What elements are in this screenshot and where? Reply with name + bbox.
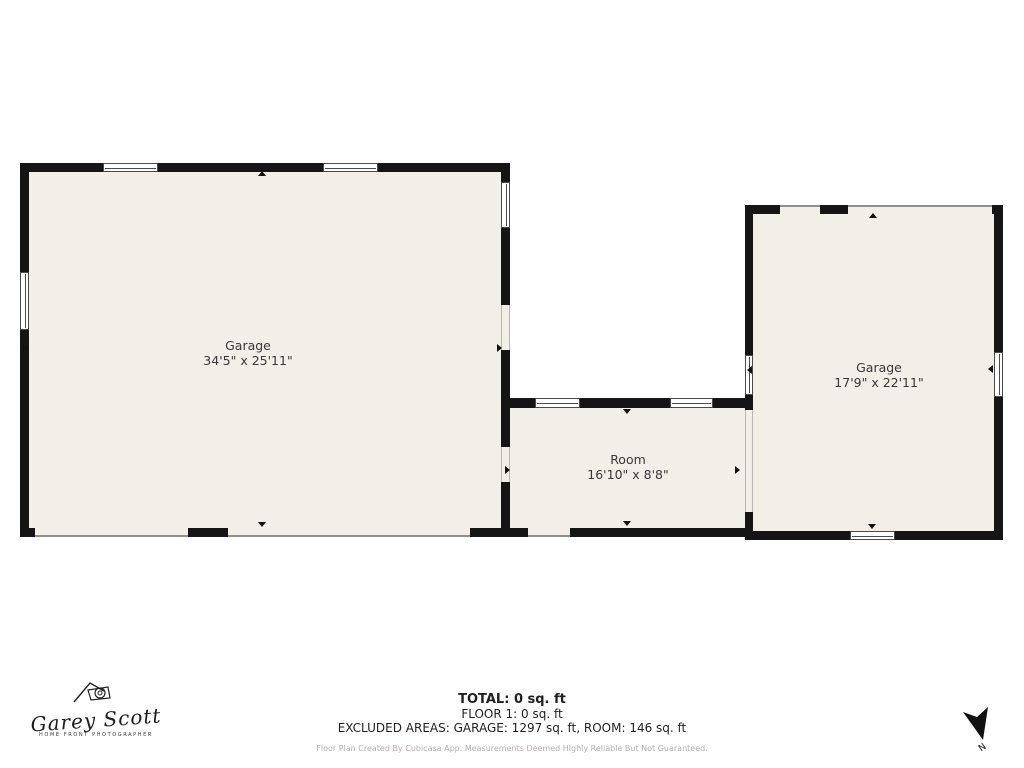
entry-arrow-icon bbox=[735, 466, 740, 474]
wall-segment bbox=[994, 205, 1003, 352]
entry-arrow-icon bbox=[868, 524, 876, 529]
north-arrow-icon: N bbox=[950, 690, 1010, 760]
window bbox=[323, 163, 378, 172]
north-compass: N bbox=[950, 690, 1010, 760]
wall-segment bbox=[570, 528, 753, 537]
wall-segment bbox=[745, 395, 753, 410]
entry-arrow-icon bbox=[505, 466, 510, 474]
door-opening bbox=[501, 305, 510, 350]
entry-arrow-icon bbox=[623, 409, 631, 414]
door-opening bbox=[501, 447, 510, 482]
room-label-room: Room 16'10" x 8'8" bbox=[587, 452, 668, 482]
wide-opening bbox=[745, 410, 753, 512]
window bbox=[670, 398, 713, 408]
room-dimensions: 34'5" x 25'11" bbox=[203, 353, 292, 368]
wall-segment bbox=[820, 205, 848, 214]
entry-arrow-icon bbox=[258, 522, 266, 527]
room-name: Room bbox=[587, 452, 668, 467]
entry-arrow-icon bbox=[23, 344, 28, 352]
window bbox=[535, 398, 580, 408]
garage-door-opening bbox=[35, 528, 188, 537]
compass-label: N bbox=[977, 742, 988, 754]
camera-house-sketch-icon bbox=[64, 678, 128, 706]
room-dimensions: 17'9" x 22'11" bbox=[834, 375, 923, 390]
floor-plan-page: Garage 34'5" x 25'11" Room 16'10" x 8'8"… bbox=[0, 0, 1024, 768]
wall-segment bbox=[188, 528, 228, 537]
room-label-garage-right: Garage 17'9" x 22'11" bbox=[834, 360, 923, 390]
window bbox=[103, 163, 158, 172]
entry-arrow-icon bbox=[623, 521, 631, 526]
window bbox=[994, 352, 1003, 397]
entry-arrow-icon bbox=[747, 366, 752, 374]
wall-segment bbox=[20, 528, 35, 537]
room-name: Garage bbox=[834, 360, 923, 375]
wall-segment bbox=[470, 528, 528, 537]
window bbox=[20, 272, 29, 330]
room-label-garage-left: Garage 34'5" x 25'11" bbox=[203, 338, 292, 368]
entry-arrow-icon bbox=[869, 213, 877, 218]
wall-segment bbox=[994, 397, 1003, 540]
window bbox=[745, 355, 753, 395]
disclaimer-text: Floor Plan Created By Cubicasa App. Meas… bbox=[0, 744, 1024, 754]
room-dimensions: 16'10" x 8'8" bbox=[587, 467, 668, 482]
entry-arrow-icon bbox=[258, 171, 266, 176]
entry-arrow-icon bbox=[988, 365, 993, 373]
door-opening bbox=[528, 528, 570, 537]
logo-name-text: Garey Scott bbox=[25, 705, 166, 735]
garage-door-opening bbox=[228, 528, 470, 537]
window bbox=[501, 182, 510, 228]
wall-segment bbox=[745, 205, 753, 355]
window bbox=[850, 531, 895, 540]
photographer-logo: Garey Scott HOME FRONT PHOTOGRAPHER bbox=[26, 678, 166, 738]
entry-arrow-icon bbox=[497, 344, 502, 352]
room-name: Garage bbox=[203, 338, 292, 353]
garage-door-opening bbox=[780, 205, 820, 214]
